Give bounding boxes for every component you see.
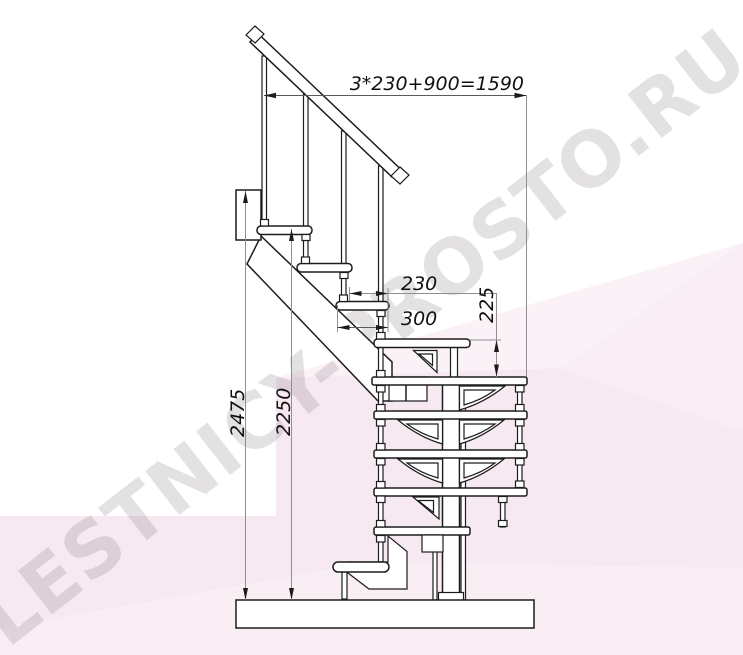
bottom-step-leg: [342, 572, 347, 599]
tread-spiral-2: [374, 411, 527, 419]
collar: [377, 459, 386, 466]
collar: [377, 311, 385, 317]
collar: [499, 497, 508, 503]
tread-spiral-3: [374, 450, 527, 458]
tread-spiral-1: [372, 377, 527, 385]
collar: [377, 386, 386, 393]
dimension-total-width-label: 3*230+900=1590: [350, 73, 524, 95]
collar: [340, 295, 348, 302]
drawing-page: LESTNICY-PROSTO.RU: [0, 0, 743, 655]
collar: [302, 235, 310, 241]
collar: [516, 420, 525, 427]
tread-spiral-5: [374, 527, 470, 535]
dimension-riser-height-label: 225: [476, 287, 498, 323]
dimension-tread-depth-label: 300: [401, 308, 437, 330]
collar: [516, 459, 525, 466]
collar: [516, 386, 525, 393]
bottom-support-block: [422, 535, 443, 552]
collar: [377, 536, 386, 543]
collar: [377, 420, 386, 427]
collar: [377, 496, 386, 503]
tread-upper-1: [257, 226, 312, 235]
stair-elevation-drawing: LESTNICY-PROSTO.RU: [0, 0, 743, 655]
right-baluster-column: [518, 385, 523, 488]
base-slab: [236, 600, 534, 628]
collar: [516, 405, 525, 412]
collar: [377, 371, 386, 378]
collar: [499, 521, 508, 527]
collar: [377, 521, 386, 528]
platform-tread: [374, 339, 470, 348]
tread-upper-2: [297, 264, 352, 273]
dimension-height-to-floor-label: 2250: [273, 388, 295, 436]
tread-upper-3: [336, 302, 389, 311]
collar: [516, 444, 525, 451]
dimension-overall-height-label: 2475: [227, 389, 249, 437]
bottom-step-tread: [333, 562, 389, 572]
collar: [377, 333, 386, 340]
collar: [516, 481, 525, 488]
collar: [377, 405, 386, 412]
collar: [261, 220, 269, 227]
collar: [377, 444, 386, 451]
collar: [302, 257, 310, 264]
collar: [377, 482, 386, 489]
collar: [340, 273, 348, 279]
dimension-step-run-label: 230: [401, 273, 437, 295]
pole-upper-post: [451, 347, 458, 378]
tread-spiral-4: [374, 488, 527, 496]
baluster-1: [262, 56, 267, 228]
